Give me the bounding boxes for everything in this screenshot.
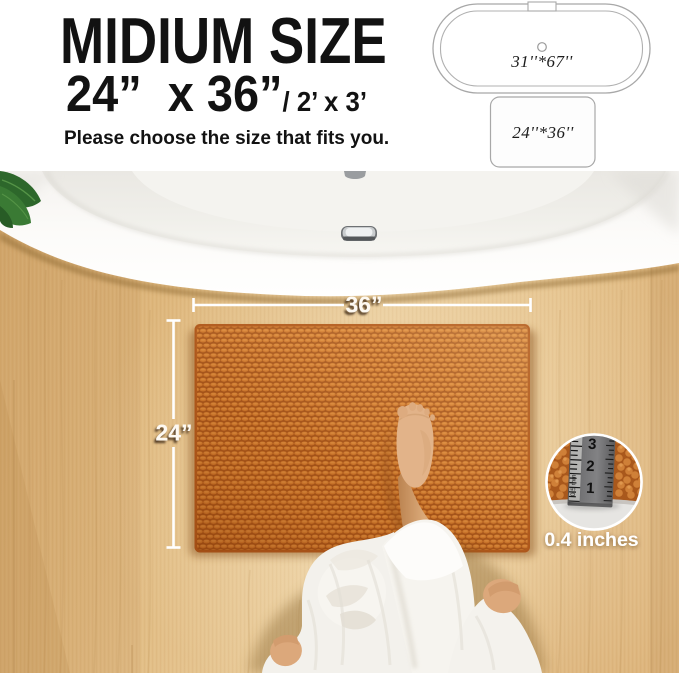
svg-text:24''*36'': 24''*36'' <box>512 123 574 142</box>
svg-text:0.4 inches: 0.4 inches <box>544 529 638 551</box>
svg-text:3: 3 <box>588 436 597 453</box>
svg-text:1: 1 <box>586 480 595 497</box>
svg-text:24”: 24” <box>155 420 192 446</box>
svg-text:31''*67'': 31''*67'' <box>510 52 573 71</box>
svg-text:36”: 36” <box>345 292 382 318</box>
svg-text:2: 2 <box>586 458 595 475</box>
svg-text:0.5 mm: 0.5 mm <box>570 474 578 496</box>
